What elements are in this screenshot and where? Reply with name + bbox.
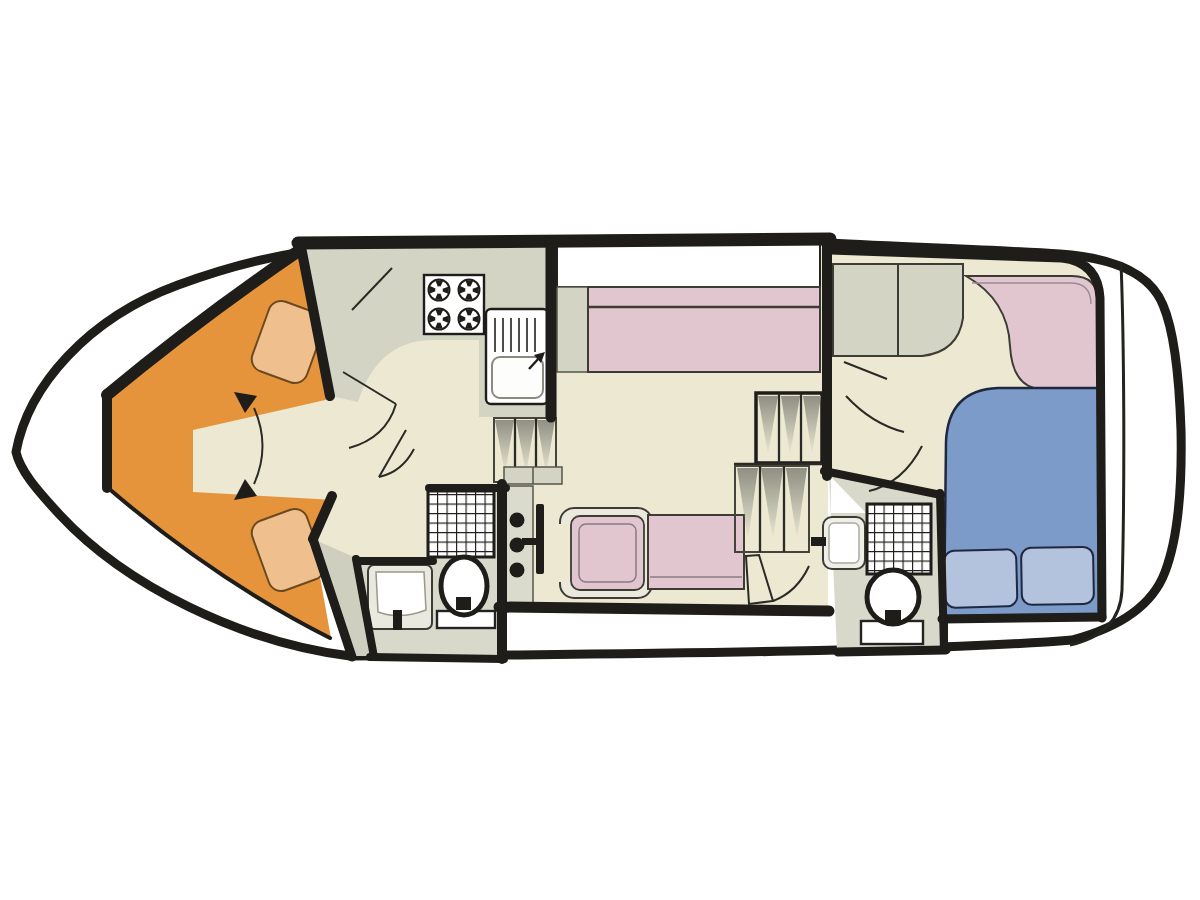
toilet-flush-icon xyxy=(456,597,471,610)
steering-wheel-icon xyxy=(536,504,544,574)
floor-plan-canvas xyxy=(0,0,1200,900)
toilet-flush-icon xyxy=(885,610,901,623)
boat-floor-plan xyxy=(0,0,1200,900)
basin-faucet-icon xyxy=(393,610,402,630)
helm-chair xyxy=(555,508,652,598)
basin-faucet-icon xyxy=(811,537,826,546)
helm-knob-icon xyxy=(510,513,525,528)
salon-side-bench xyxy=(588,287,820,372)
aft-cabinet-left xyxy=(833,264,898,356)
stove-burner-icon xyxy=(459,309,480,330)
stove-burner-icon xyxy=(429,280,450,301)
helm-knob-icon xyxy=(510,563,525,578)
bench-end-cabinet xyxy=(557,287,588,372)
steering-column-icon xyxy=(522,538,537,545)
shower-aft xyxy=(867,504,931,574)
washbasin-forward xyxy=(368,565,432,630)
aft-cabinet-right xyxy=(898,264,963,356)
stove-burner-icon xyxy=(429,309,450,330)
galley-sink-unit xyxy=(486,309,548,404)
dinette-bench xyxy=(648,515,744,589)
shower-forward xyxy=(428,491,494,557)
bed-pillow-right xyxy=(1021,547,1094,605)
salon-sideboard xyxy=(557,241,820,287)
bed-pillow-left xyxy=(944,549,1017,608)
toilet-aft xyxy=(861,570,923,644)
stove-burner-icon xyxy=(459,280,480,301)
